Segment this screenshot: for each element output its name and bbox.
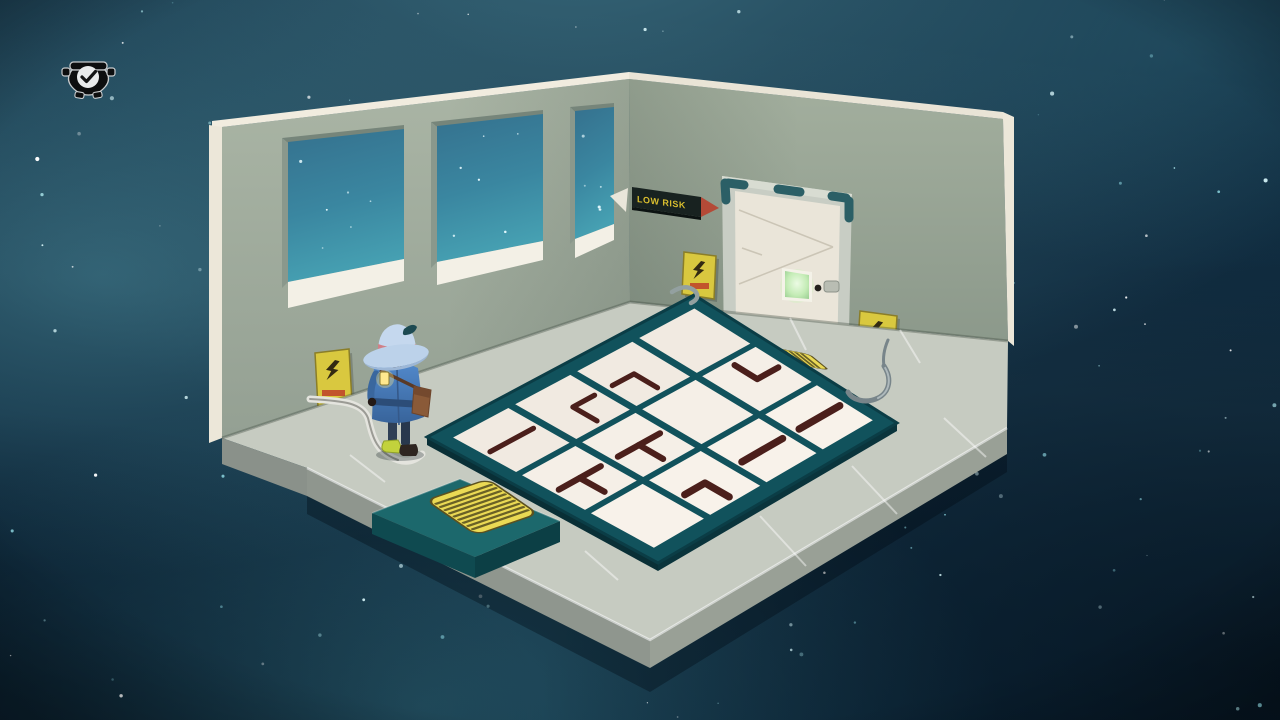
- vignette: [0, 0, 1280, 720]
- game-screen: LOW RISK: [0, 0, 1280, 720]
- game-scene: LOW RISK: [0, 0, 1280, 720]
